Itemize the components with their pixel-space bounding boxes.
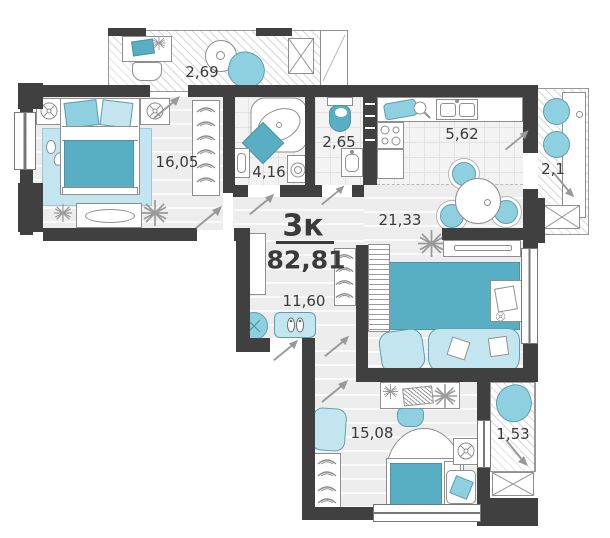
wall — [352, 185, 364, 197]
tv-console — [443, 240, 521, 257]
plant-icon — [383, 384, 398, 399]
stove — [377, 122, 404, 149]
wardrobe-main — [192, 100, 220, 196]
slipper-icon — [46, 140, 56, 154]
sink-bowl — [440, 103, 456, 117]
pillow — [64, 99, 100, 129]
wall — [108, 28, 146, 36]
faucet-icon — [455, 99, 459, 103]
wall — [302, 338, 315, 520]
floor-plan: 2,69 16,05 4,16 2,65 5,62 2,1 21,33 11,6… — [0, 0, 610, 538]
window — [373, 504, 481, 522]
towel-ladder-rung — [365, 103, 375, 105]
entrance-arrow-icon — [318, 332, 356, 360]
wall — [523, 344, 538, 370]
wall — [43, 228, 197, 241]
kitchen-sink — [436, 99, 478, 120]
room-area-label-loggia-right: 2,1 — [541, 160, 565, 178]
towel-ladder-rung — [365, 139, 375, 141]
door-opening — [523, 153, 538, 189]
sink-basin — [345, 154, 359, 172]
pillow — [449, 475, 474, 500]
balcony-desk-chair — [132, 62, 162, 81]
label-divider — [276, 241, 334, 244]
pouf-with-pillow — [446, 470, 476, 504]
wall — [356, 245, 368, 382]
wall — [305, 97, 315, 187]
door-swing-arrow-icon — [318, 182, 348, 208]
dresser-detail — [85, 209, 135, 223]
wall-tv-stub — [442, 228, 525, 240]
plant-icon — [142, 200, 168, 226]
room-area-label-wc: 2,65 — [322, 133, 355, 151]
room-area-label-bedroom-main: 16,05 — [156, 153, 199, 171]
door-swing-arrow-icon — [502, 126, 532, 154]
window — [14, 112, 36, 170]
towel-ladder-rung — [365, 115, 375, 117]
towel-ladder-rung — [365, 127, 375, 129]
room-area-label-balcony-top: 2,69 — [185, 63, 218, 81]
keyboard-detail — [402, 385, 434, 406]
bed-duvet — [64, 140, 134, 188]
bed-sheet-band — [62, 126, 138, 141]
room-area-label-kitchen-living: 21,33 — [379, 211, 422, 229]
door-swing-arrow-icon — [150, 92, 184, 122]
wall — [477, 498, 538, 526]
toilet — [329, 105, 351, 132]
wall — [236, 228, 250, 352]
loggia-chair — [543, 131, 570, 158]
magnifier-icon — [412, 100, 432, 120]
kitchen-living-boundary — [377, 184, 523, 185]
wall-pier — [18, 83, 43, 109]
loggia-chair — [543, 98, 570, 125]
living-desk — [490, 280, 522, 322]
toilet-seat — [335, 108, 347, 117]
room-area-label-kitchen: 5,62 — [445, 125, 478, 143]
wall — [256, 28, 292, 36]
door-swing-arrow-icon — [192, 202, 226, 232]
wall-pier — [523, 198, 545, 243]
desk-detail — [494, 285, 518, 312]
dining-table — [455, 178, 501, 224]
room-area-label-bathroom: 4,16 — [252, 163, 285, 181]
bedroom2-wardrobe — [313, 453, 341, 510]
wall — [477, 382, 490, 422]
neighbor-structure — [320, 30, 348, 86]
wall — [356, 368, 538, 382]
wall-pier — [18, 183, 43, 232]
plant-icon — [418, 230, 445, 257]
balcony-door-window — [477, 420, 491, 468]
room-area-label-hallway: 11,60 — [283, 292, 326, 310]
total-area-label: 82,81 — [266, 246, 345, 275]
dresser — [76, 203, 142, 228]
bedroom2-armchair — [311, 407, 348, 452]
crossed-box-icon — [492, 472, 534, 496]
cabinet-with-fan — [453, 438, 480, 465]
plant-icon — [54, 204, 72, 222]
pillow — [100, 99, 134, 129]
shoe-bench — [274, 312, 316, 338]
wall — [223, 97, 235, 193]
door-swing-arrow-icon — [318, 376, 352, 406]
knob-detail — [576, 111, 583, 118]
sink-bowl — [459, 103, 475, 117]
bed-footboard — [62, 187, 138, 195]
entrance-arrow-icon — [268, 336, 304, 364]
room-area-label-bedroom-second: 15,08 — [351, 424, 394, 442]
wall — [280, 185, 315, 197]
kitchen-cabinet — [377, 149, 404, 179]
bed-second-mattress — [390, 463, 442, 505]
tv-icon — [454, 245, 512, 251]
crossed-box-icon — [544, 205, 580, 229]
sofa-pillow — [488, 336, 509, 357]
door-swing-arrow-icon — [246, 190, 278, 218]
bathroom-sink — [233, 148, 250, 178]
table-detail — [484, 199, 491, 206]
window — [521, 248, 538, 344]
plant-icon — [433, 384, 457, 408]
crossed-box-icon — [288, 38, 314, 74]
sink-basin — [237, 153, 246, 173]
sofa-pillow — [447, 337, 471, 361]
wc-sink — [341, 148, 363, 177]
balcony-table-center — [216, 51, 225, 60]
room-area-label-loggia-bottom: 1,53 — [496, 425, 529, 443]
wall — [236, 338, 270, 352]
apartment-type-label: 3к — [282, 209, 323, 244]
plant-icon — [152, 36, 166, 50]
hall-shelf-cabinet — [368, 244, 390, 332]
